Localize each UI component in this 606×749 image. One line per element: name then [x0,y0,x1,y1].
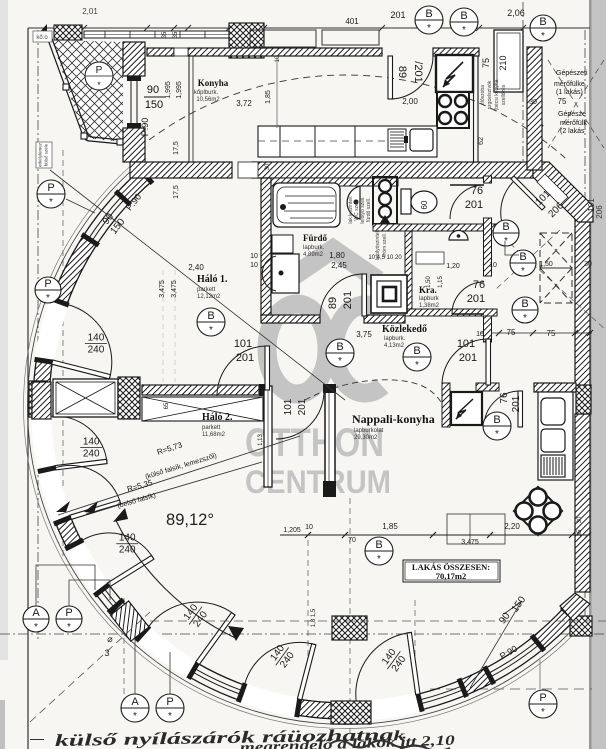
svg-text:30: 30 [529,99,537,106]
svg-text:11,68m2: 11,68m2 [202,432,226,438]
svg-text:*: * [541,707,545,718]
svg-text:(2 lakás: (2 lakás [560,128,585,135]
svg-text:90: 90 [147,84,159,96]
svg-text:150: 150 [145,99,163,111]
svg-text:*: * [34,622,38,633]
svg-text:*: * [133,711,137,722]
svg-text:35: 35 [577,529,583,536]
svg-text:előszoba: előszoba [480,85,486,105]
svg-text:101: 101 [283,398,294,415]
svg-text:(bécsi konyha: (bécsi konyha [494,79,500,110]
svg-text:70: 70 [348,537,356,544]
svg-text:4,89m2: 4,89m2 [303,252,324,258]
svg-text:Nappali-konyha: Nappali-konyha [352,412,435,426]
svg-text:*: * [46,293,50,304]
svg-text:B: B [521,298,528,310]
svg-text:2,40: 2,40 [188,263,204,272]
svg-text:35: 35 [162,31,168,38]
svg-text:3,475: 3,475 [159,280,166,298]
svg-text:201: 201 [342,291,354,309]
svg-text:Közlekedő: Közlekedő [382,324,427,335]
svg-text:Háló 1.: Háló 1. [197,274,228,285]
svg-text:*: * [427,23,431,34]
svg-text:1,8 1,5: 1,8 1,5 [311,608,317,627]
svg-text:*: * [495,429,499,440]
svg-text:B: B [502,221,509,233]
svg-text:3,475: 3,475 [171,280,178,298]
svg-text:1,205: 1,205 [283,527,301,534]
svg-text:101: 101 [457,338,475,350]
svg-text:/201: /201 [412,61,424,82]
svg-text:201: 201 [390,10,405,20]
svg-text:lefolyószintek: lefolyószintek [375,229,381,260]
svg-text:1,995: 1,995 [176,81,183,99]
svg-text:P: P [47,182,54,194]
svg-text:89: 89 [327,297,339,309]
svg-text:3,72: 3,72 [236,99,252,108]
svg-text:60: 60 [420,200,429,209]
svg-text:1,85: 1,85 [382,522,398,531]
svg-text:35: 35 [173,31,179,38]
svg-text:17,5: 17,5 [173,141,180,155]
svg-text:201: 201 [459,352,477,364]
svg-text:4,13m2: 4,13m2 [384,343,405,349]
svg-text:201: 201 [467,293,485,305]
svg-text:B: B [519,251,526,263]
svg-text:89,12°: 89,12° [166,511,214,529]
svg-text:3,475: 3,475 [461,539,479,546]
svg-text:P: P [166,696,173,708]
svg-text:140: 140 [83,436,100,447]
svg-text:206: 206 [595,205,604,219]
svg-text:⌀: ⌀ [107,634,113,644]
svg-text:65: 65 [164,402,170,409]
svg-text:kő:o: kő:o [36,35,48,41]
svg-text:lapburk: lapburk [419,296,440,302]
svg-text:Gépészeti: Gépészeti [556,70,588,77]
svg-text:A: A [131,696,139,708]
svg-text:Gépésze: Gépésze [558,111,586,118]
svg-text:401: 401 [345,17,359,26]
svg-text:10: 10 [250,253,258,260]
svg-text:1,50: 1,50 [539,261,553,268]
svg-text:70,17m2: 70,17m2 [436,571,466,581]
svg-text:30: 30 [584,261,592,268]
svg-text:szgoelszívók: szgoelszívók [487,80,493,109]
svg-text:10: 10 [250,262,258,269]
svg-text:10: 10 [489,262,497,269]
svg-text:1,13: 1,13 [258,434,264,446]
svg-text:10: 10 [305,524,313,531]
svg-text:62: 62 [478,137,485,145]
svg-text:1,50: 1,50 [426,276,432,288]
svg-text:140: 140 [88,332,105,343]
svg-text:75: 75 [481,58,491,68]
svg-text:B: B [413,345,420,357]
svg-text:210: 210 [498,55,508,70]
svg-text:B: B [336,341,343,353]
svg-text:*: * [67,622,71,633]
svg-text:1,20: 1,20 [446,263,460,270]
svg-text:17,5: 17,5 [173,185,180,199]
svg-text:B: B [207,310,214,322]
svg-text:2,45: 2,45 [331,261,347,270]
svg-text:P: P [96,65,103,76]
svg-text:*: * [541,31,545,42]
svg-text:76: 76 [473,279,485,291]
svg-text:P: P [44,278,51,290]
svg-text:*: * [97,80,101,90]
svg-text:201: 201 [511,395,522,412]
svg-text:lapburkolat: lapburkolat [354,428,384,434]
svg-text:fürdő szell.: fürdő szell. [366,198,372,222]
svg-text:Fürdő: Fürdő [303,233,328,243]
svg-text:10: 10 [275,55,281,62]
svg-text:*: * [49,197,53,208]
svg-text:2,00: 2,00 [402,97,418,106]
svg-text:101: 101 [234,338,252,350]
svg-text:76: 76 [499,392,510,404]
svg-text:89: 89 [396,66,408,78]
svg-text:*: * [415,360,419,371]
svg-text:2,06: 2,06 [507,8,525,18]
svg-text:29,30m2: 29,30m2 [354,435,378,441]
svg-text:1,38m2: 1,38m2 [419,303,440,309]
svg-text:201: 201 [297,398,308,415]
svg-text:*: * [168,711,172,722]
svg-text:76: 76 [471,185,483,197]
svg-text:B: B [425,8,432,20]
svg-text:B: B [375,539,382,551]
svg-text:szellőzés: szellőzés [501,84,507,105]
svg-text:1,15: 1,15 [438,276,444,288]
svg-text:3,75: 3,75 [356,330,372,339]
svg-text:króm szell.: króm szell. [382,233,388,257]
svg-text:B: B [493,414,500,426]
svg-text:A: A [32,607,40,619]
svg-text:240: 240 [83,448,100,459]
svg-text:Konyha: Konyha [198,78,229,88]
svg-text:10,56m2: 10,56m2 [196,97,220,103]
svg-text:*: * [523,313,527,324]
svg-text:201: 201 [236,352,254,364]
svg-text:*: * [338,356,342,367]
svg-text:—: — [30,730,44,746]
svg-text:75: 75 [547,329,556,338]
svg-text:1,995: 1,995 [165,81,172,99]
svg-text:201: 201 [465,199,483,211]
svg-text:30: 30 [577,516,583,523]
svg-text:parkett: parkett [202,425,221,431]
svg-text:1,85: 1,85 [265,90,272,104]
svg-text:1,80: 1,80 [329,251,345,260]
svg-text:P: P [539,692,546,704]
svg-text:30: 30 [265,163,271,170]
svg-text:mérőfülke: mérőfülke [554,81,585,88]
svg-text:75: 75 [507,328,516,337]
svg-text:kőplburk.: kőplburk. [194,90,219,96]
svg-text:külső széle: külső széle [44,143,49,166]
svg-text:*: * [462,25,466,36]
svg-text:240: 240 [88,344,105,355]
svg-text:P:90: P:90 [140,118,150,137]
svg-text:*: * [209,325,213,336]
svg-text:lapburk.: lapburk. [303,245,325,251]
svg-text:B: B [539,16,546,28]
svg-text:75: 75 [558,97,567,106]
svg-text:Háló 2.: Háló 2. [202,412,233,423]
svg-text:erkélylemez: erkélylemez [38,142,43,167]
svg-text:P: P [65,607,72,619]
svg-text:B: B [460,10,467,22]
svg-text:*: * [521,266,525,277]
svg-text:10: 10 [476,331,484,338]
svg-text:mérőfülk: mérőfülk [560,120,587,127]
svg-text:12,12m2: 12,12m2 [197,294,221,300]
svg-text:2,01: 2,01 [82,7,98,16]
svg-text:*: * [377,554,381,565]
svg-text:lapburk.: lapburk. [384,336,406,342]
svg-text:(1 lakás): (1 lakás) [556,89,583,96]
